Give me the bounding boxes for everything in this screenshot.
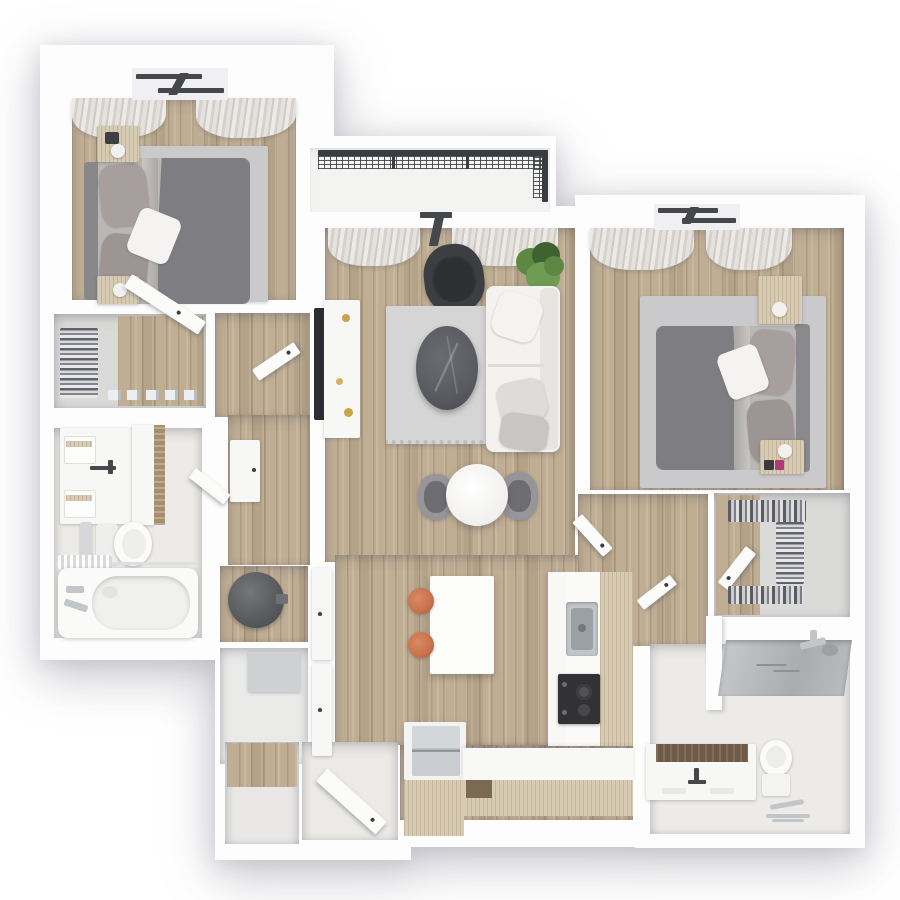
apartment-building — [0, 0, 900, 900]
nightstand-bedroom2-top — [758, 276, 802, 324]
bath2-toilet — [758, 740, 794, 800]
kitchen-counter-right-woodband — [600, 572, 633, 746]
sofa-pillow-white — [488, 288, 546, 346]
bath1-tall-cabinet — [132, 425, 154, 525]
nightstand-bedroom1-top — [97, 126, 139, 162]
closet1-folded-row — [108, 390, 200, 400]
closet2-hanging-bottom — [728, 586, 804, 604]
coat-closet-back-wall — [227, 743, 297, 787]
bath2-vanity-counter — [656, 744, 748, 762]
coffee-table — [416, 326, 478, 410]
kitchen-counter-dark-inset — [466, 780, 492, 798]
kitchen-cabinet-under-fridge — [404, 780, 464, 836]
sofa — [486, 286, 560, 452]
balcony-railing-mesh-right — [533, 156, 542, 198]
balcony-railing-post-1 — [392, 150, 395, 169]
water-heater — [228, 572, 284, 628]
bath2-vanity — [646, 744, 756, 800]
bar-stool-1 — [408, 588, 434, 614]
window-living-mullion — [420, 212, 452, 248]
refrigerator — [404, 722, 466, 780]
kitchen-sink — [566, 602, 598, 656]
kitchen-island — [430, 576, 494, 674]
blanket — [656, 326, 740, 470]
floor-plan-canvas — [0, 0, 900, 900]
utility-box — [248, 652, 300, 692]
kitchen-counter-bottom-top — [463, 748, 633, 780]
bar-stool-2 — [408, 632, 434, 658]
sofa-pillow-gray-2 — [497, 410, 550, 453]
window-bedroom1 — [132, 68, 228, 100]
nightstand-bedroom2-bottom — [760, 440, 804, 474]
closet2-hanging-top — [728, 500, 806, 522]
bath2-shower-fixture — [800, 630, 844, 660]
bath1-bathtub — [58, 568, 198, 638]
balcony-railing-post-2 — [466, 150, 469, 169]
kitchen-cooktop — [558, 674, 600, 724]
utility-door-lower — [312, 664, 332, 756]
bath1-cabinet-wood-side — [154, 425, 165, 525]
linen-closet-door — [230, 440, 260, 502]
closet2-shelves — [776, 522, 804, 584]
bath1-vanity — [60, 428, 132, 524]
tv-console — [324, 300, 360, 438]
bath2-towel-stand — [766, 800, 810, 824]
dining-table — [446, 464, 508, 526]
closet1-shelf-stack — [60, 328, 98, 398]
balcony-railing-mesh — [318, 156, 548, 169]
utility-door-upper — [312, 568, 332, 660]
balcony-railing-right — [542, 150, 548, 202]
window-bedroom2 — [654, 204, 740, 230]
